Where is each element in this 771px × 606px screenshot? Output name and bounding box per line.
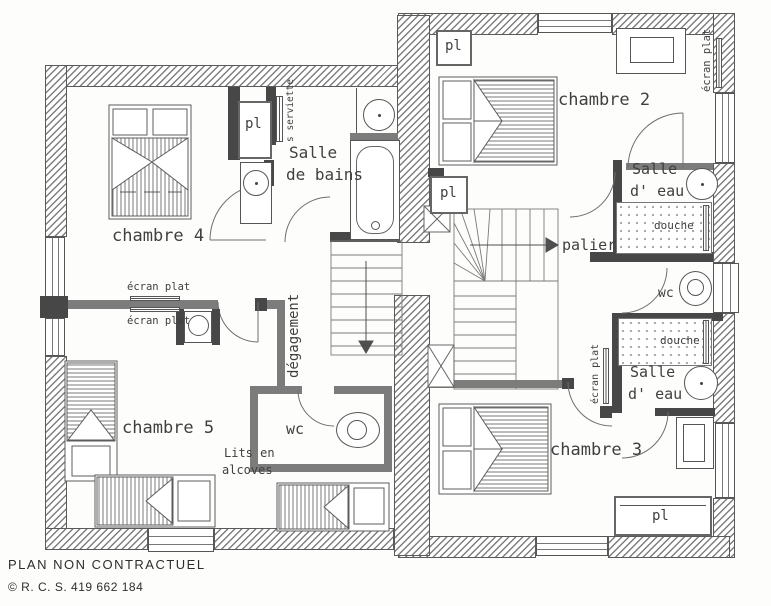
label-douche-haut: douche <box>654 219 694 232</box>
room-label-chambre-3: chambre 3 <box>550 440 642 460</box>
toilet-bowl <box>687 279 704 296</box>
dresser-top <box>683 424 705 462</box>
label-ecran-plat-chambre2: écran plat <box>701 29 713 92</box>
bed-symbol <box>94 474 216 528</box>
toilet-bowl <box>347 420 367 440</box>
room-label-wc-droit: wc <box>658 286 674 301</box>
wall-block <box>212 309 220 345</box>
room-label-palier: palier <box>562 236 616 254</box>
shower-screen <box>703 320 709 364</box>
sink-symbol <box>686 168 718 200</box>
room-label-salle-de-bains-2: de bains <box>286 165 363 184</box>
label-pl-chambre3: pl <box>652 508 669 524</box>
room-label-salle-eau-haut-1: Salle <box>632 160 677 178</box>
footer-rcs-number: © R. C. S. 419 662 184 <box>8 580 143 594</box>
room-label-wc-gauche: wc <box>286 420 304 438</box>
room-label-salle-eau-bas-2: d' eau <box>628 385 682 403</box>
bed-symbol <box>64 360 118 482</box>
room-label-chambre-4: chambre 4 <box>112 226 204 246</box>
label-ecran-plat-chambre5: écran plat <box>127 315 190 327</box>
bathtub-drain <box>371 221 380 230</box>
sink-symbol <box>243 170 269 196</box>
desk-top <box>630 37 674 63</box>
sink-symbol <box>363 99 395 131</box>
sink-symbol <box>684 366 718 400</box>
room-label-chambre-2: chambre 2 <box>558 90 650 110</box>
door-arc <box>285 197 330 242</box>
flue-pipe <box>188 315 209 336</box>
label-lits-alcoves-2: alcoves <box>222 463 273 477</box>
room-label-salle-de-bains-1: Salle <box>289 143 337 162</box>
shower-screen <box>703 205 709 251</box>
towel-radiator-symbol <box>276 96 283 142</box>
room-label-salle-eau-haut-2: d' eau <box>630 182 684 200</box>
room-label-degagement: dégagement <box>286 294 302 378</box>
room-label-salle-eau-bas-1: Salle <box>630 363 675 381</box>
bathtub-symbol <box>350 140 400 240</box>
tv-symbol <box>130 296 180 301</box>
bed-symbol <box>438 76 558 166</box>
label-pl-palier: pl <box>440 185 457 201</box>
room-label-chambre-5: chambre 5 <box>122 418 214 438</box>
label-ecran-plat-chambre4: écran plat <box>127 281 190 293</box>
tv-symbol <box>603 348 609 404</box>
door-arc <box>218 302 258 342</box>
bed-symbol <box>276 482 390 532</box>
door-arc <box>570 172 615 217</box>
label-pl-chambre4: pl <box>245 116 262 132</box>
label-seche-serviette: s serviette <box>285 79 296 142</box>
tv-symbol <box>716 38 722 88</box>
label-pl-chambre2: pl <box>445 38 462 54</box>
floor-plan: chambre 4 chambre 5 chambre 2 chambre 3 … <box>0 0 771 606</box>
label-ecran-plat-chambre3: écran plat <box>590 344 601 404</box>
footer-disclaimer: PLAN NON CONTRACTUEL <box>8 557 206 572</box>
tv-symbol <box>130 307 180 312</box>
closet-shelf <box>620 505 706 506</box>
label-douche-bas: douche <box>660 334 700 347</box>
bed-symbol <box>108 104 192 220</box>
bed-symbol <box>438 403 552 495</box>
label-lits-alcoves-1: Lits en <box>224 446 275 460</box>
